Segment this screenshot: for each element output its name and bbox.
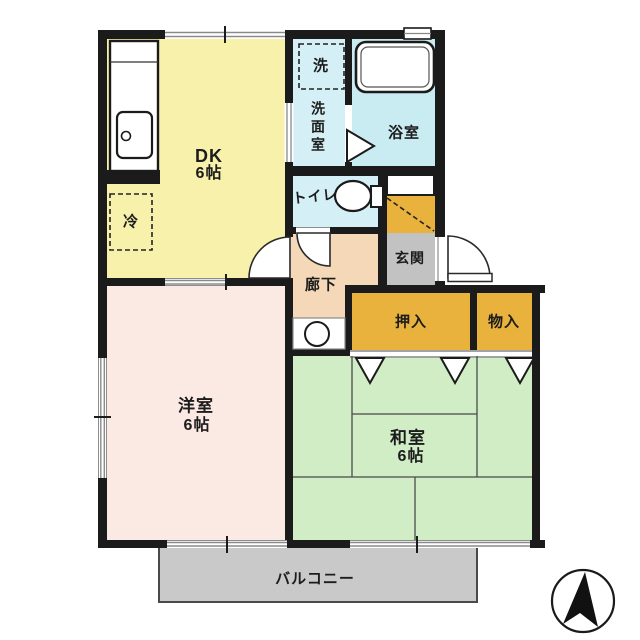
western-room-size: 6帖: [184, 418, 211, 434]
sliding-door: [285, 103, 294, 162]
japanese-room-size: 6帖: [398, 449, 425, 465]
storage-label: 物入: [488, 315, 520, 330]
bathroom-label: 浴室: [388, 126, 420, 141]
entrance-label: 玄関: [395, 251, 425, 265]
window: [165, 26, 285, 43]
fusuma-mark-icon: [356, 358, 384, 383]
fusuma-mark-icon: [441, 358, 469, 383]
fusuma-rail: [350, 350, 532, 358]
north-arrow-icon: [552, 570, 614, 632]
fusuma-mark-icon: [506, 358, 534, 383]
balcony-label: バルコニー: [275, 572, 355, 587]
window: [94, 358, 111, 478]
dk-room-size: 6帖: [196, 166, 223, 182]
floorplan-canvas: DK 6帖 洗面室 浴室 トイレ 廊下 玄関 押入 物入 洋室 6帖 和室 6帖…: [0, 0, 640, 640]
floorplan-shapes: [0, 0, 640, 640]
washroom-label: 洗面室: [311, 101, 325, 155]
refrigerator-label: 冷: [123, 215, 139, 230]
kitchen-counter: [110, 41, 158, 171]
closet-label: 押入: [395, 315, 427, 330]
window: [404, 28, 431, 39]
shoe-cabinet-diagonal: [387, 198, 434, 231]
window: [350, 536, 530, 553]
entrance-door: [436, 236, 493, 282]
washer-label: 洗: [313, 59, 329, 74]
toilet-fixture: [335, 181, 383, 211]
window: [167, 536, 287, 553]
dk-door: [249, 237, 290, 278]
dk-room-label: DK: [195, 147, 223, 165]
sliding-door: [165, 274, 227, 290]
bath-door-icon: [347, 130, 374, 162]
japanese-room-label: 和室: [390, 430, 426, 447]
bathtub: [356, 42, 434, 92]
toilet-door: [296, 228, 330, 267]
hallway-step: [293, 318, 345, 349]
hallway-label: 廊下: [305, 278, 337, 293]
western-room-label: 洋室: [178, 398, 214, 415]
